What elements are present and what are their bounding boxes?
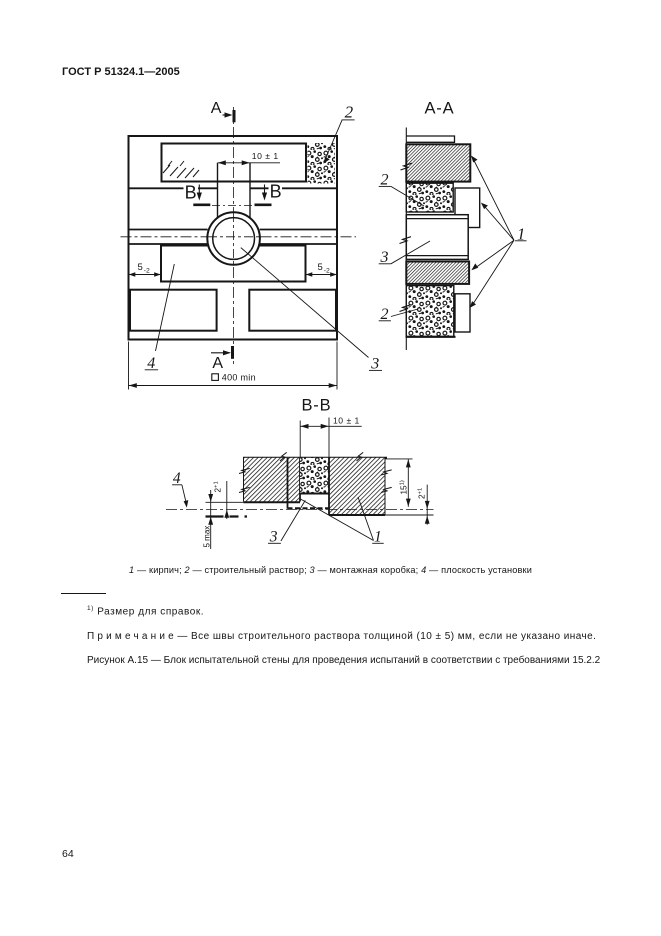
svg-text:10 ± 1: 10 ± 1 bbox=[333, 416, 360, 426]
svg-text:A: A bbox=[212, 355, 223, 372]
svg-text:2+1: 2+1 bbox=[417, 488, 426, 499]
svg-text:5: 5 bbox=[138, 262, 143, 273]
svg-text:-2: -2 bbox=[324, 268, 330, 275]
svg-text:2+1: 2+1 bbox=[213, 481, 222, 492]
svg-text:3: 3 bbox=[380, 249, 389, 266]
svg-text:10 ± 1: 10 ± 1 bbox=[252, 151, 279, 161]
svg-text:B: B bbox=[270, 181, 282, 201]
svg-text:3: 3 bbox=[370, 355, 379, 372]
svg-text:-2: -2 bbox=[144, 268, 150, 275]
svg-text:В-В: В-В bbox=[302, 396, 332, 414]
svg-text:5 max: 5 max bbox=[202, 526, 211, 548]
svg-text:400 min: 400 min bbox=[222, 373, 256, 383]
svg-text:А-А: А-А bbox=[425, 100, 455, 118]
svg-text:B: B bbox=[185, 182, 197, 202]
svg-text:5: 5 bbox=[318, 262, 323, 273]
svg-text:151): 151) bbox=[399, 480, 408, 494]
svg-text:A: A bbox=[211, 100, 222, 117]
svg-text:2: 2 bbox=[345, 102, 354, 121]
